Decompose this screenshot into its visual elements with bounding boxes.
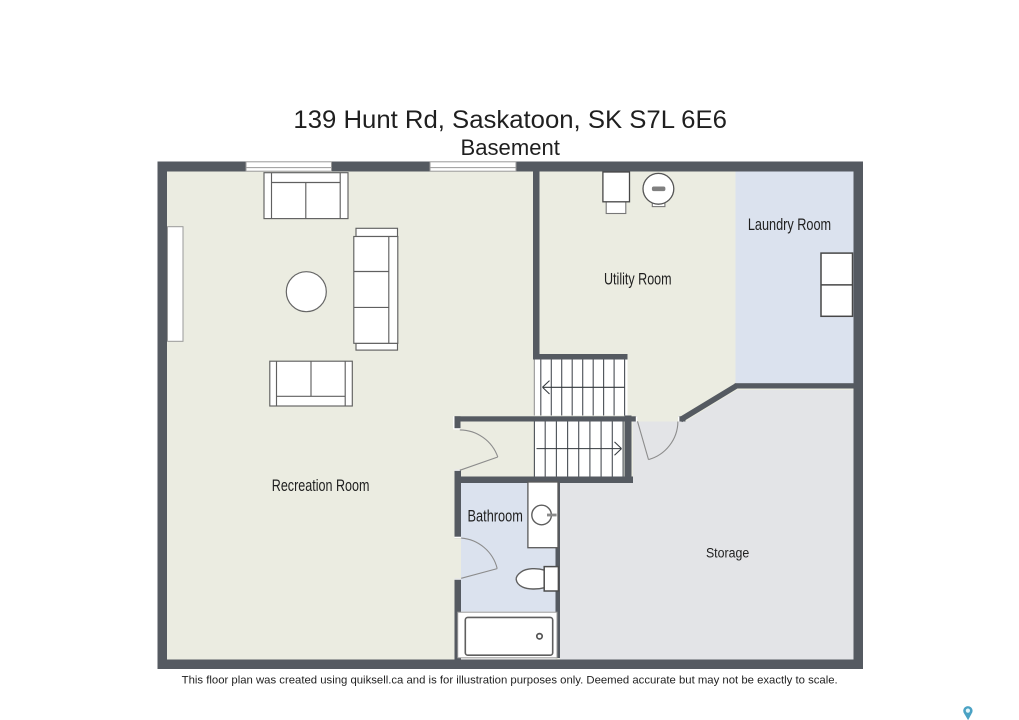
svg-text:Bathroom: Bathroom bbox=[468, 506, 523, 525]
svg-text:Laundry Room: Laundry Room bbox=[748, 215, 831, 234]
svg-text:139 Hunt Rd, Saskatoon, SK S7L: 139 Hunt Rd, Saskatoon, SK S7L 6E6 bbox=[293, 106, 727, 134]
svg-text:Storage: Storage bbox=[706, 546, 749, 562]
svg-text:Basement: Basement bbox=[461, 135, 561, 160]
svg-text:Recreation Room: Recreation Room bbox=[272, 476, 370, 495]
svg-text:Utility Room: Utility Room bbox=[604, 269, 672, 288]
svg-text:This floor plan was created us: This floor plan was created using quikse… bbox=[182, 674, 838, 686]
